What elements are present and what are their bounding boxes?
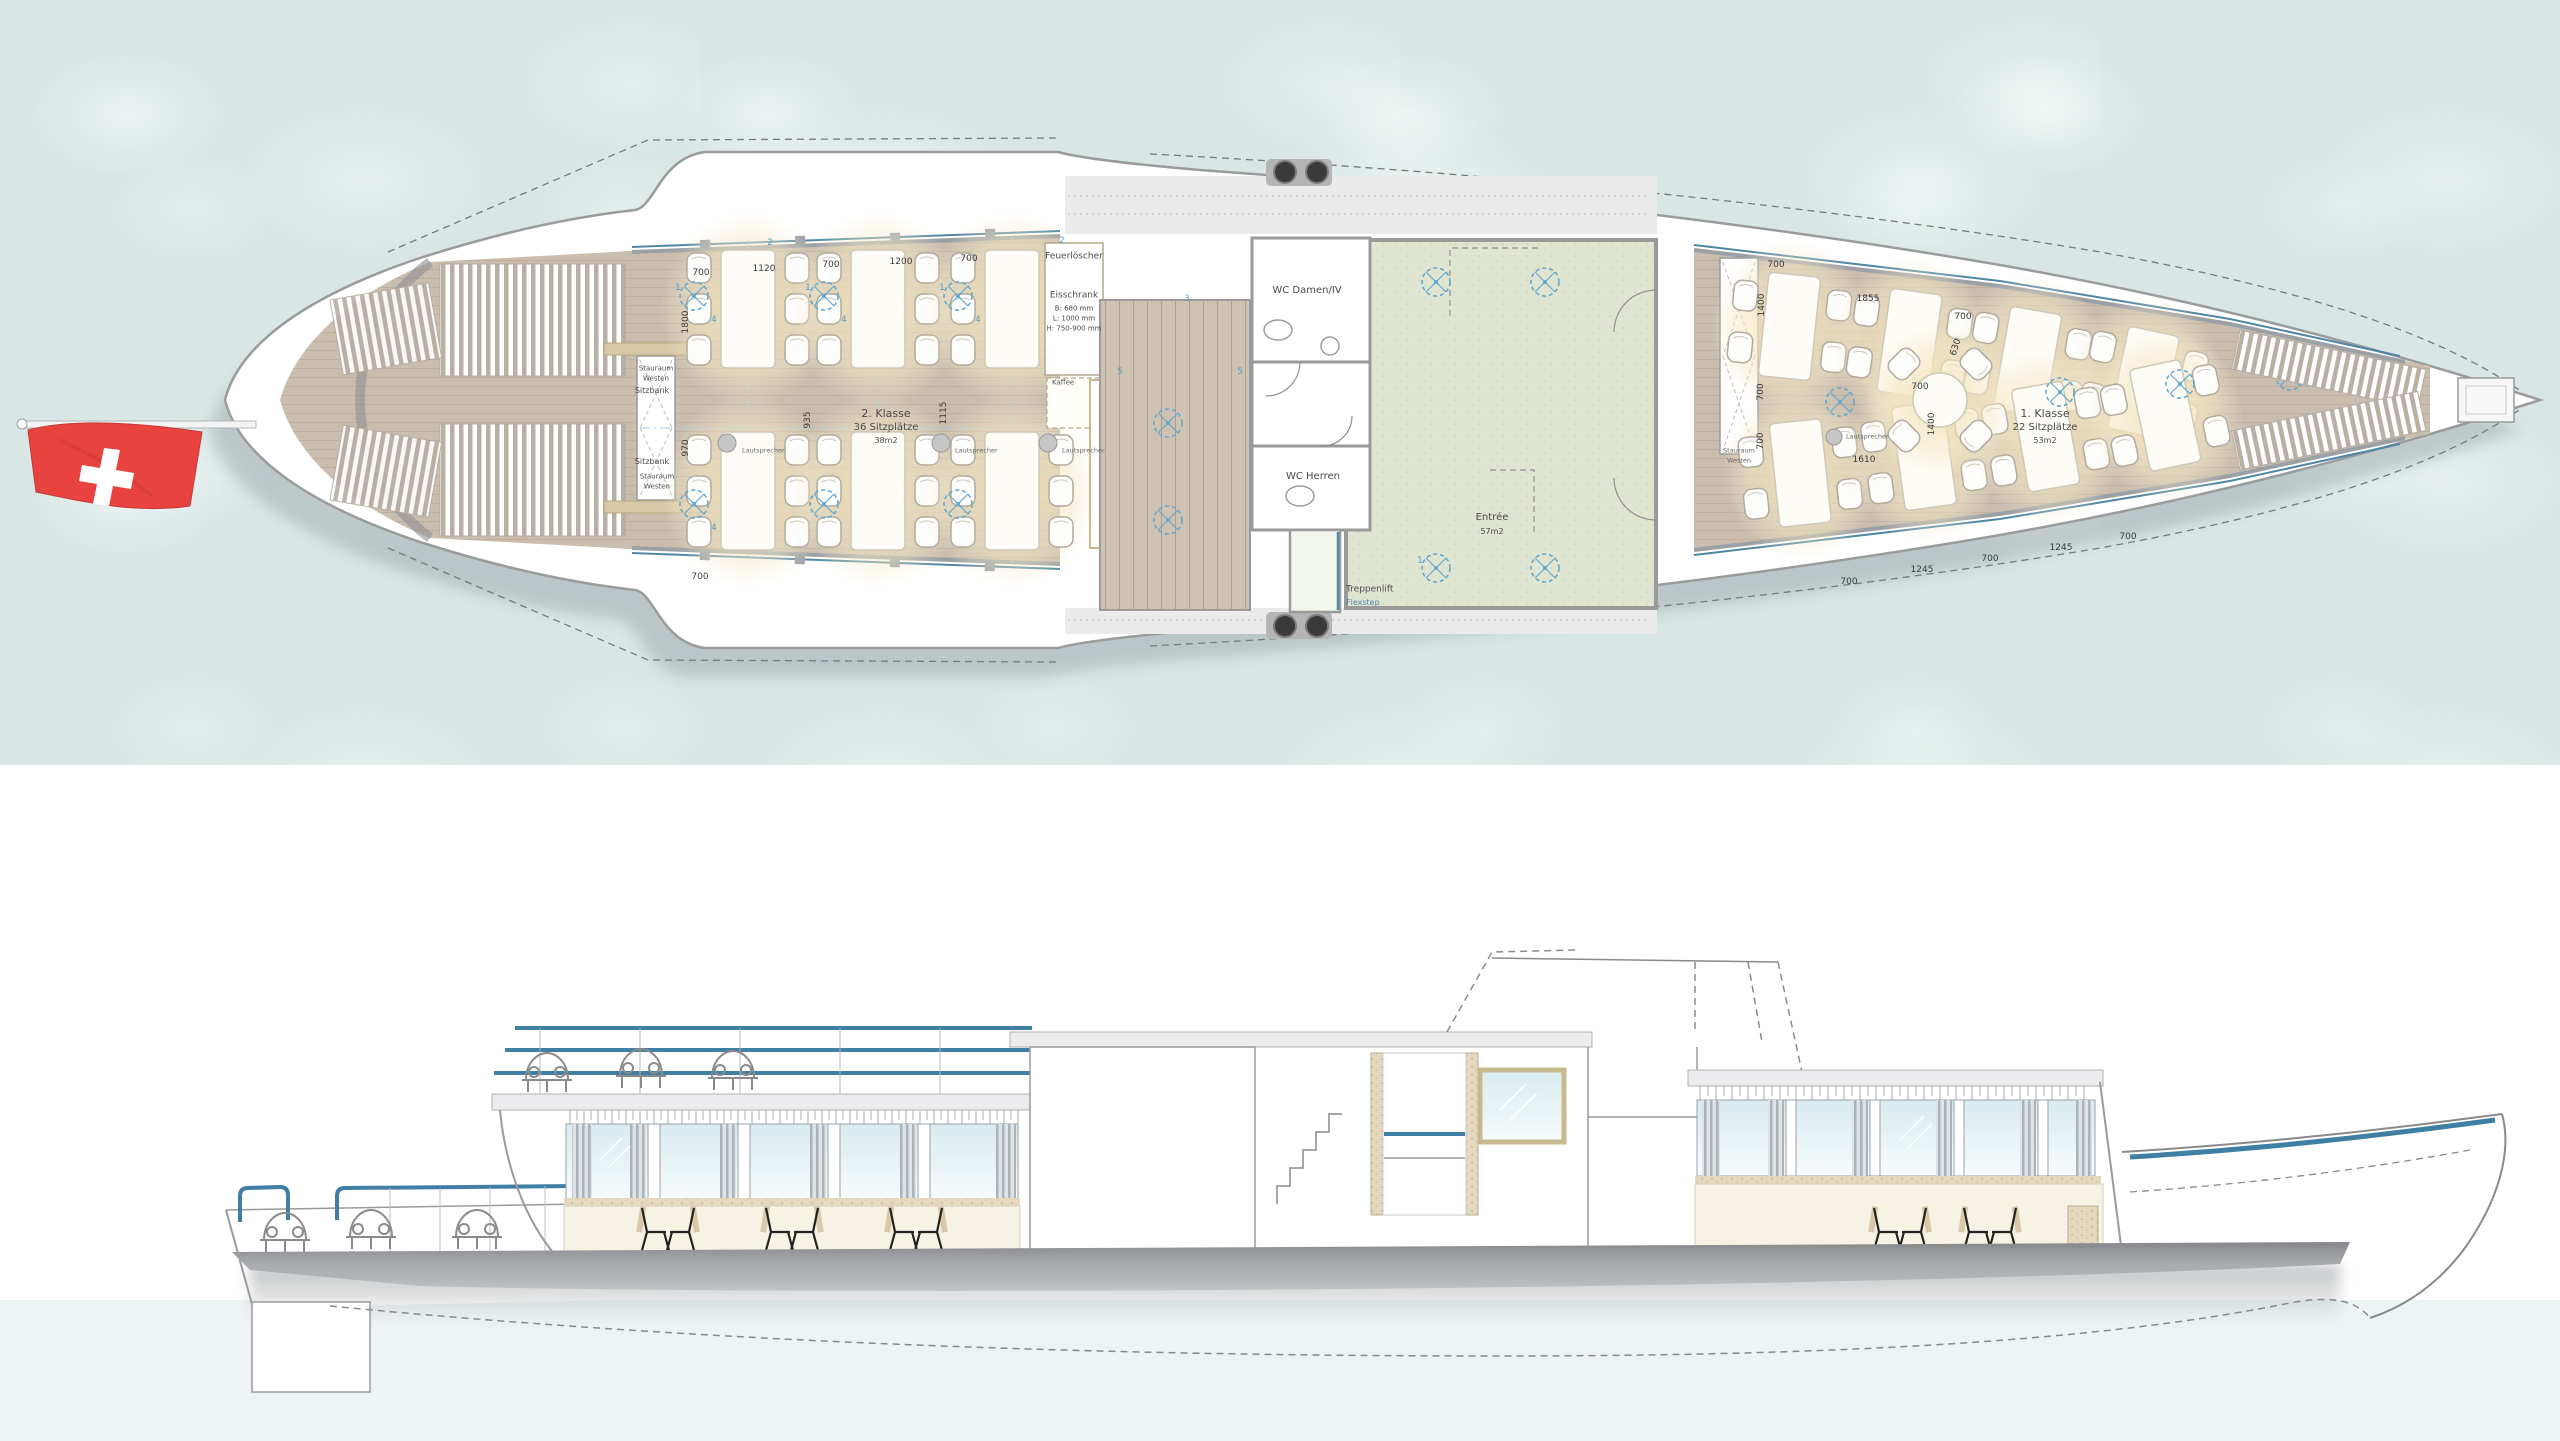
- bench-icon: [708, 1051, 758, 1090]
- label-lautsprecher: Lautsprecher: [742, 448, 785, 455]
- svg-text:700: 700: [1767, 260, 1784, 270]
- speaker-icon: [932, 434, 950, 452]
- svg-text:5: 5: [1117, 367, 1122, 377]
- label-sitzbank: Sitzbank: [635, 458, 669, 466]
- svg-text:700: 700: [1981, 554, 1998, 564]
- speaker-icon: [718, 434, 736, 452]
- svg-text:970: 970: [681, 439, 691, 456]
- round-table: [1864, 324, 2016, 476]
- svg-text:700: 700: [822, 260, 839, 270]
- svg-text:5: 5: [1237, 367, 1242, 377]
- svg-text:1855: 1855: [1857, 294, 1880, 304]
- svg-text:1245: 1245: [2050, 543, 2073, 553]
- svg-text:1800: 1800: [681, 310, 691, 333]
- washbasin: [1321, 337, 1339, 355]
- svg-text:1200: 1200: [890, 257, 913, 267]
- bollard-icon: [1274, 161, 1296, 183]
- door-elevation: [1371, 1053, 1478, 1215]
- svg-text:700: 700: [960, 254, 977, 264]
- bollard-icon: [1274, 615, 1296, 637]
- roof-deck-railing: [494, 1028, 1032, 1073]
- svg-text:700: 700: [692, 268, 709, 278]
- label-stauraum: Westen: [644, 483, 670, 490]
- svg-text:4: 4: [841, 315, 846, 325]
- svg-text:2: 2: [1059, 236, 1064, 246]
- label-class1-area: 53m2: [2033, 437, 2056, 445]
- svg-text:3: 3: [1184, 294, 1189, 304]
- svg-text:4: 4: [975, 315, 980, 325]
- label-stauraum: Stauraum: [640, 473, 674, 480]
- svg-text:1115: 1115: [939, 402, 949, 425]
- bollard-icon: [1306, 615, 1328, 637]
- svg-text:700: 700: [1840, 577, 1857, 587]
- label-sitzbank: Sitzbank: [635, 387, 669, 395]
- label-entree: Entrée: [1476, 513, 1509, 524]
- svg-text:935: 935: [803, 411, 813, 428]
- svg-text:1120: 1120: [753, 264, 776, 274]
- label-wc-herren: WC Herren: [1286, 472, 1340, 483]
- svg-text:1: 1: [1417, 556, 1422, 566]
- center-block: [1045, 159, 1657, 639]
- second-class-saloon: [604, 211, 1100, 589]
- label-lautsprecher: Lautsprecher: [1062, 448, 1105, 455]
- label-lautsprecher: Lautsprecher: [1846, 434, 1889, 441]
- bench-icon: [616, 1049, 666, 1088]
- stern-bench-slats: [440, 264, 625, 376]
- svg-text:700: 700: [1756, 383, 1766, 400]
- label-eisschrank-h: H: 750-900 mm: [1047, 325, 1102, 332]
- ship-drawing-sheet: 700 1120 700 1200 700 700 1800 935 1115 …: [0, 0, 2560, 1441]
- label-stauraum: Stauraum: [639, 365, 673, 372]
- label-eisschrank-b: B: 680 mm: [1055, 305, 1094, 312]
- svg-text:1: 1: [675, 283, 680, 293]
- label-class2-seats: 36 Sitzplätze: [854, 423, 919, 434]
- svg-text:1: 1: [939, 283, 944, 293]
- plan-view: [17, 138, 2540, 678]
- label-treppenlift: Treppenlift: [1346, 585, 1393, 594]
- svg-text:4: 4: [711, 315, 716, 325]
- valance: [570, 1110, 1018, 1124]
- svg-text:1400: 1400: [1927, 412, 1937, 435]
- label-class1-seats: 22 Sitzplätze: [2013, 423, 2078, 434]
- svg-text:1: 1: [805, 283, 810, 293]
- bollard-icon: [1306, 161, 1328, 183]
- label-eisschrank-l: L: 1000 mm: [1053, 315, 1095, 322]
- svg-text:700: 700: [2119, 532, 2136, 542]
- svg-text:1400: 1400: [1757, 293, 1767, 316]
- window-elevation: [1480, 1070, 1564, 1142]
- label-eisschrank: Eisschrank: [1050, 291, 1098, 300]
- svg-text:700: 700: [1756, 432, 1766, 449]
- label-class2: 2. Klasse: [861, 408, 910, 420]
- second-class-elevation: [492, 1094, 1032, 1256]
- svg-text:700: 700: [1954, 312, 1971, 322]
- toilet-fixture: [1264, 320, 1292, 340]
- elevation-view: [0, 950, 2560, 1441]
- label-lautsprecher: Lautsprecher: [955, 448, 998, 455]
- label-feuerloescher: Feuerlöscher: [1045, 252, 1103, 261]
- svg-text:2: 2: [767, 238, 772, 248]
- label-stauraum: Westen: [643, 375, 669, 382]
- treppenlift-shaft: [1290, 530, 1340, 612]
- svg-text:700: 700: [691, 572, 708, 582]
- svg-text:700: 700: [1911, 382, 1928, 392]
- svg-text:4: 4: [711, 523, 716, 533]
- drawing-canvas: 700 1120 700 1200 700 700 1800 935 1115 …: [0, 0, 2560, 1441]
- label-treppenlift-model: Flexstep: [1346, 599, 1380, 607]
- entree-room: [1346, 240, 1656, 608]
- speaker-icon: [1826, 429, 1842, 445]
- stairs: [1100, 300, 1250, 610]
- label-wc-damen: WC Damen/IV: [1272, 286, 1341, 297]
- label-stauraum: Westen: [1727, 458, 1751, 465]
- toilet-fixture: [1286, 486, 1314, 506]
- label-class1: 1. Klasse: [2020, 408, 2069, 420]
- rudder-skeg: [252, 1302, 370, 1392]
- svg-text:1610: 1610: [1853, 455, 1876, 465]
- label-entree-area: 57m2: [1480, 528, 1503, 536]
- speaker-icon: [1039, 434, 1057, 452]
- label-kaffee: Kaffee: [1052, 379, 1074, 386]
- label-class2-area: 38m2: [874, 437, 897, 445]
- label-stauraum: Stauraum: [1723, 448, 1755, 455]
- stern-bench-slats: [440, 424, 625, 536]
- svg-text:1245: 1245: [1911, 565, 1934, 575]
